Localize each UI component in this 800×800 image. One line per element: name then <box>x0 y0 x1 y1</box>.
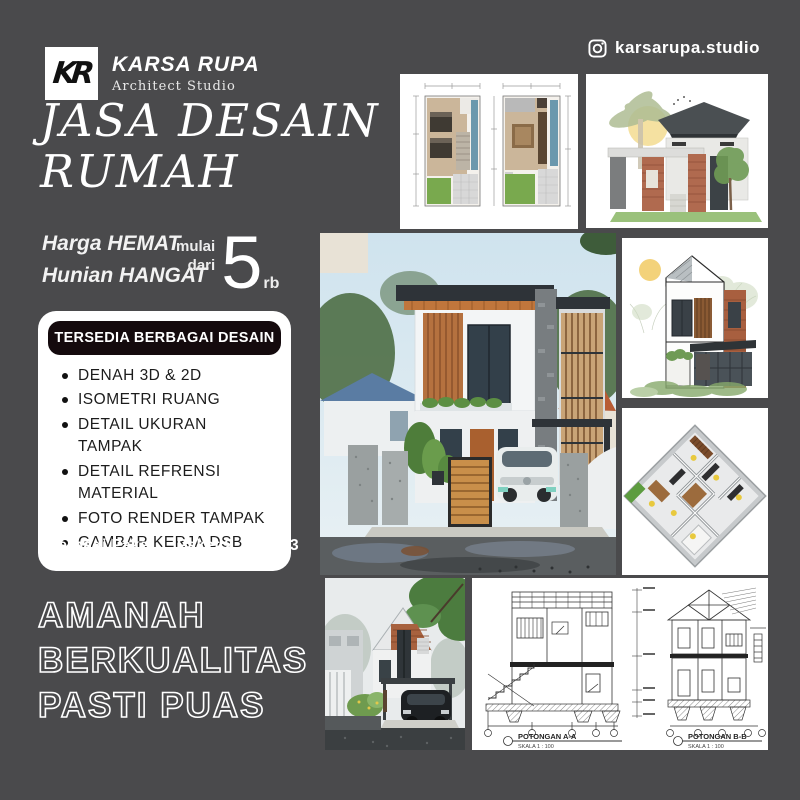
studio-name: KARSA RUPA <box>112 53 260 76</box>
price-unit: rb <box>263 275 279 293</box>
elevation-image <box>622 238 768 398</box>
studio-subtitle: Architect Studio <box>112 79 260 94</box>
feature-item: ISOMETRI RUANG <box>62 389 275 411</box>
sections-drawing: POTONGAN A-A SKALA 1 : 100 POTONGAN B-B … <box>472 578 768 750</box>
logo-text: KARSA RUPA Architect Studio <box>112 53 260 94</box>
road <box>325 728 465 750</box>
isometric-plan-image <box>622 408 768 575</box>
price-prefix: mulai dari <box>176 238 215 276</box>
feature-item: DETAIL REFRENSI MATERIAL <box>62 461 275 506</box>
poster-canvas: KR KARSA RUPA Architect Studio karsarupa… <box>0 0 800 800</box>
feature-item-label: DETAIL REFRENSI MATERIAL <box>78 463 221 502</box>
watercolor-facade-drawing <box>586 74 768 228</box>
features-badge: TERSEDIA BERBAGAI DESAIN <box>48 321 281 355</box>
packages-footnote: * terbagi Paket 1, Paket 2, Paket 3 <box>42 537 299 555</box>
floorplans-drawing <box>400 74 578 229</box>
watercolor-facade-image <box>586 74 768 228</box>
slogan-line2: BERKUALITAS <box>38 639 308 684</box>
price-block: mulai dari 5 rb <box>176 230 279 297</box>
feature-item: DETAIL UKURAN TAMPAK <box>62 414 275 459</box>
brick-door-column <box>688 154 706 212</box>
main-title-line2: RUMAH <box>40 147 380 198</box>
main-render-image <box>320 233 616 575</box>
section-b-scale: SKALA 1 : 100 <box>688 744 724 750</box>
gable-house-image <box>325 578 465 750</box>
section-a-scale: SKALA 1 : 100 <box>518 744 554 750</box>
features-card: TERSEDIA BERBAGAI DESAIN DENAH 3D & 2D I… <box>38 311 291 571</box>
floorplans-image <box>400 74 578 229</box>
price-amount: 5 <box>221 230 260 297</box>
feature-item: FOTO RENDER TAMPAK <box>62 508 275 530</box>
price-prefix-line1: mulai <box>176 238 215 257</box>
slogan: AMANAH BERKUALITAS PASTI PUAS <box>38 594 308 728</box>
feature-item-label: DENAH 3D & 2D <box>78 367 202 384</box>
feature-item: DENAH 3D & 2D <box>62 365 275 387</box>
logo-monogram-box: KR <box>45 47 98 100</box>
sun-icon <box>639 259 661 281</box>
slogan-line3: PASTI PUAS <box>38 684 308 729</box>
slogan-line1: AMANAH <box>38 594 308 639</box>
car <box>496 447 558 502</box>
logo-kr-monogram: KR <box>51 56 91 91</box>
elevation-drawing <box>622 238 768 398</box>
instagram-handle-text: karsarupa.studio <box>615 38 760 58</box>
studio-logo: KR KARSA RUPA Architect Studio <box>45 47 260 100</box>
brick-pillar <box>642 157 664 211</box>
feature-item-label: ISOMETRI RUANG <box>78 391 220 408</box>
section-b-label: POTONGAN B-B <box>688 732 747 741</box>
gable-house-scene <box>325 578 465 750</box>
sections-image: POTONGAN A-A SKALA 1 : 100 POTONGAN B-B … <box>472 578 768 750</box>
main-title: JASA DESAIN RUMAH <box>40 96 380 198</box>
section-a-label: POTONGAN A-A <box>518 732 577 741</box>
instagram-icon <box>588 39 607 58</box>
feature-item-label: DETAIL UKURAN TAMPAK <box>78 416 207 455</box>
instagram-handle[interactable]: karsarupa.studio <box>588 38 760 58</box>
isometric-plan-drawing <box>622 408 768 575</box>
main-render-scene <box>320 233 616 575</box>
price-prefix-line2: dari <box>176 257 215 276</box>
features-list: DENAH 3D & 2D ISOMETRI RUANG DETAIL UKUR… <box>48 365 281 555</box>
main-title-line1: JASA DESAIN <box>40 96 380 147</box>
feature-item-label: FOTO RENDER TAMPAK <box>78 510 265 527</box>
